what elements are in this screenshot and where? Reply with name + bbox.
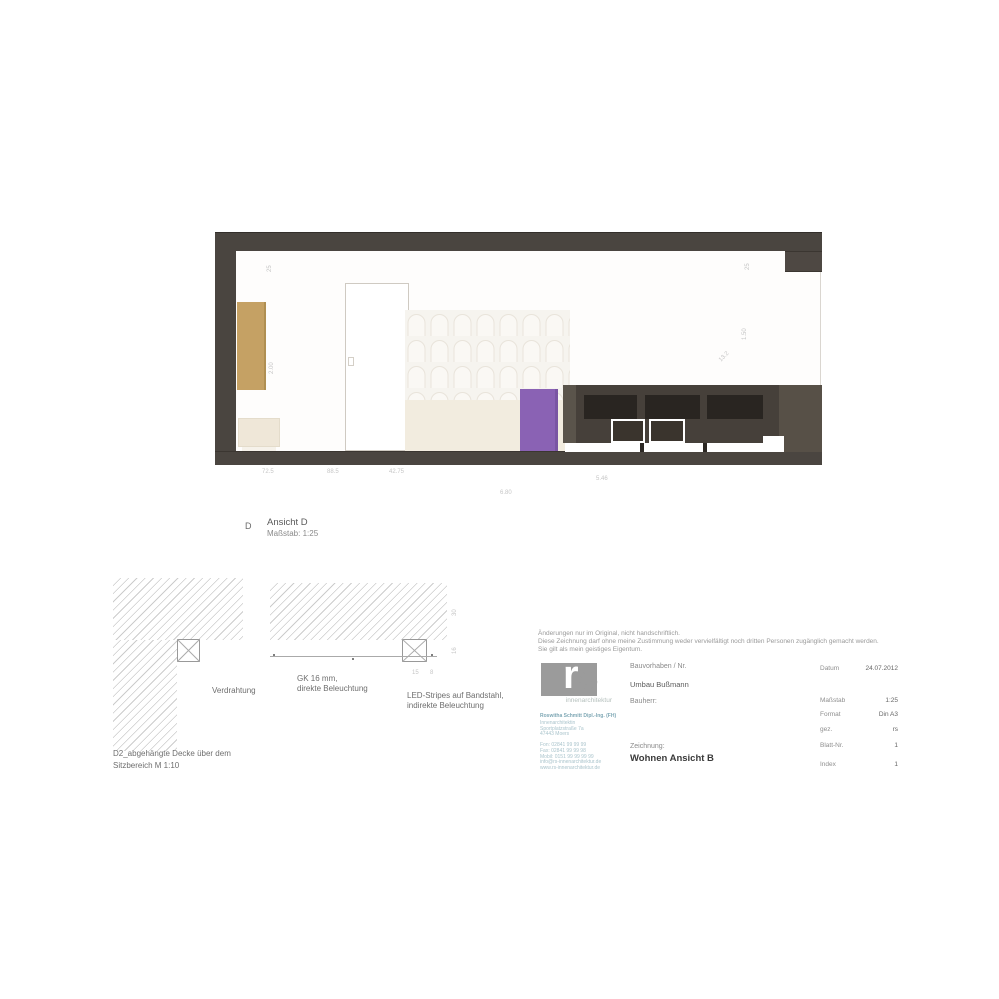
fixing-dot-1: [273, 654, 275, 656]
scale-value: 1:25: [838, 697, 898, 704]
bench-base: [242, 447, 276, 451]
format-value: Din A3: [838, 711, 898, 718]
detail-dim-v1: 30: [452, 609, 458, 616]
detail-hatch-slab-left: [113, 578, 243, 640]
detail-dim-s2: 8: [430, 670, 433, 676]
logo-rs: rs: [563, 655, 597, 695]
dim-left-mid: 2.00: [269, 362, 275, 374]
bench: [238, 418, 280, 447]
drawn-by-value: rs: [838, 726, 898, 733]
drawn-by-label: gez.: [820, 726, 832, 733]
timber-batten-symbol-2: [402, 639, 427, 667]
sideboard-end-block: [779, 385, 822, 452]
logo-letter-s: s: [577, 653, 597, 697]
drawing-title: Wohnen Ansicht B: [630, 753, 714, 764]
view-title: Ansicht D: [267, 517, 308, 528]
door-handle: [348, 357, 354, 366]
dim-d: 5.46: [596, 476, 608, 482]
index-label: Index: [820, 761, 836, 768]
sheet-number-value: 1: [838, 742, 898, 749]
purple-panel: [520, 389, 558, 451]
detail-hatch-wall-left: [113, 640, 177, 751]
detail-caption-line1: D2_abgehängte Decke über dem: [113, 749, 231, 759]
label-gk-line2: direkte Beleuchtung: [297, 684, 368, 694]
sideboard-side-panel: [563, 385, 576, 443]
office-address: Innenarchitektin Sportplatzstraße 7a 474…: [540, 721, 601, 771]
label-led-line1: LED-Stripes auf Bandstahl,: [407, 691, 504, 701]
project-label: Bauvorhaben / Nr.: [630, 663, 686, 670]
tall-cabinet: [237, 302, 266, 390]
sideboard-end-notch: [763, 436, 784, 452]
floor-band: [215, 451, 822, 465]
detail-dim-s1: 15: [412, 670, 419, 676]
dim-left-top: 25: [267, 265, 273, 272]
drawing-label: Zeichnung:: [630, 743, 665, 750]
detail-dim-v2: 16: [452, 647, 458, 654]
label-wiring: Verdrahtung: [212, 686, 256, 696]
label-gk-line1: GK 16 mm,: [297, 674, 337, 684]
dim-a: 72.5: [262, 469, 274, 475]
fixing-dot-3: [431, 654, 433, 656]
dim-c: 42.75: [389, 469, 404, 475]
view-scale: Maßstab: 1:25: [267, 529, 318, 538]
stool-2: [649, 419, 685, 443]
elevation-drawing: 25 2.00 25 1.50 13.2: [215, 232, 822, 465]
stool-1: [611, 419, 645, 443]
sideboard-niche-3: [707, 395, 763, 419]
dim-total: 6.80: [500, 490, 512, 496]
timber-batten-symbol-1: [177, 639, 200, 667]
view-marker-letter: D: [245, 521, 252, 531]
label-led-line2: indirekte Beleuchtung: [407, 701, 484, 711]
sideboard-base: [565, 443, 778, 452]
fixing-dot-2: [352, 658, 354, 660]
logo-subtitle: innenarchitektur: [545, 697, 612, 704]
sideboard-niche-1: [584, 395, 637, 419]
logo-letter-r: r: [563, 653, 577, 697]
office-name: Roswitha Schmitt Dipl.-Ing. (FH): [540, 714, 616, 720]
detail-caption-line2: Sitzbereich M 1:10: [113, 761, 179, 771]
date-label: Datum: [820, 665, 839, 672]
base-divider-1: [640, 443, 644, 452]
copyright-note: Änderungen nur im Original, nicht handsc…: [538, 630, 908, 654]
dim-right-mid: 1.50: [742, 328, 748, 340]
door: [345, 283, 409, 451]
dim-right-top: 25: [745, 263, 751, 270]
gk-board-line: [270, 656, 437, 657]
project-value: Umbau Bußmann: [630, 680, 689, 689]
sideboard-niche-2: [645, 395, 700, 419]
client-label: Bauherr:: [630, 698, 657, 705]
left-wall: [215, 251, 236, 465]
soffit-block: [785, 251, 822, 272]
date-value: 24.07.2012: [838, 665, 898, 672]
index-value: 1: [838, 761, 898, 768]
base-divider-2: [703, 443, 707, 452]
detail-hatch-slab-right: [270, 583, 447, 640]
ceiling-band: [215, 232, 822, 251]
dim-b: 88.5: [327, 469, 339, 475]
